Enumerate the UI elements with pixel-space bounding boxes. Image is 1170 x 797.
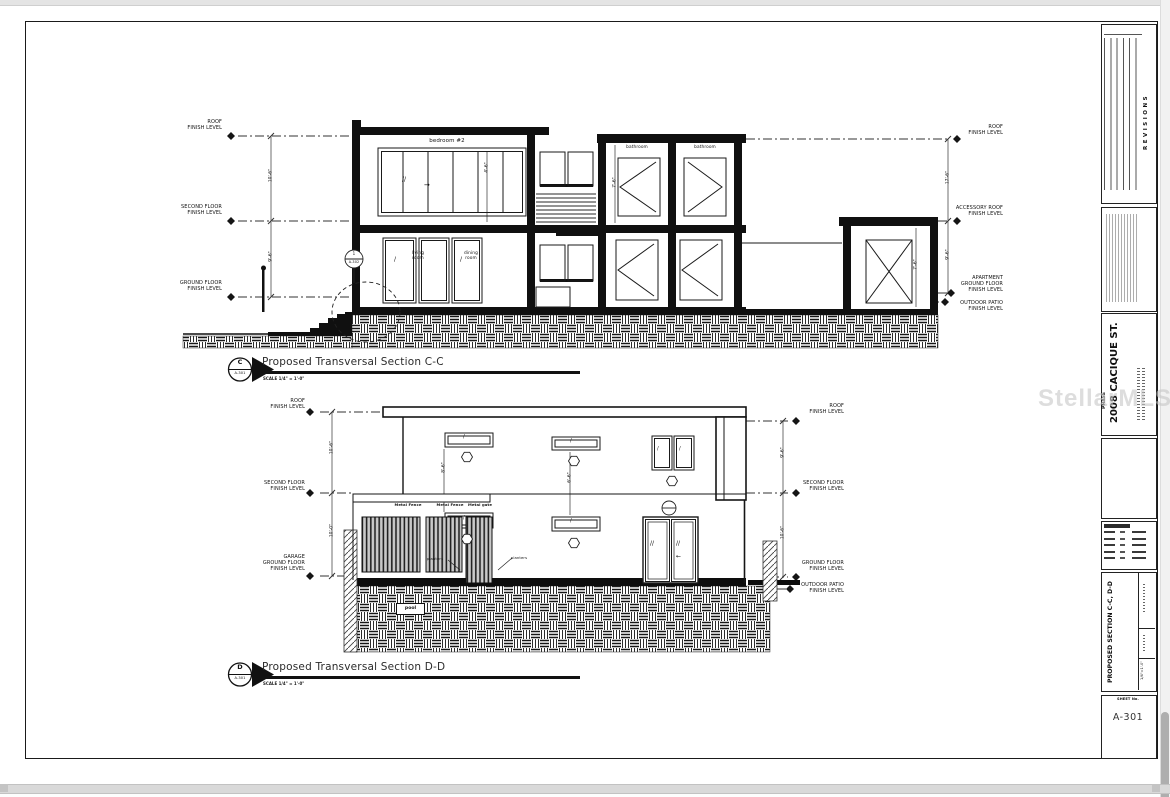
dd-scale-note: SCALE 1/4" = 1'-0" [263,681,304,686]
dd-dim-int-a: 8'-6" [442,453,447,483]
dd-ground-hatch [356,586,770,652]
dd-level-label-ground-right: GROUND FLOOR FINISH LEVEL [797,561,844,573]
dd-dim-int-b: 6'-6" [568,463,573,493]
cc-title-underline [262,371,580,374]
cc-level-label-second-left: SECOND FLOOR FINISH LEVEL [166,205,222,217]
dd-retaining-wall-left [344,530,357,652]
dd-metal-fence-2 [426,517,462,572]
dd-window-a-glyph: / [463,434,465,440]
dd-window-b-glyph: / [570,438,572,444]
cc-dim-left-lower: 9'-6" [269,242,274,272]
cc-bath-door-lr [680,240,722,300]
dd-window-c2-glyph: / [679,446,681,452]
dd-retaining-wall-right [763,541,777,601]
cc-bath-door-ul [618,158,660,216]
cc-section-title: Proposed Transversal Section C-C [262,356,444,368]
cc-room-label-bathroom-ul: bathroom [607,145,667,150]
dd-window-d-glyph: / [463,515,465,521]
cc-bedroom-window-band [378,148,526,216]
sheet-number-label: SHEET No. [1103,697,1153,703]
cc-room-label-bathroom-ur: bathroom [675,145,735,150]
sheet-number: A-301 [1103,715,1153,721]
cc-room-label-bathroom-lr: bathroom [673,227,733,232]
dd-marker-letter: D [233,665,247,671]
dd-label-planters-2: planters [504,555,534,561]
dd-label-planters-1: planters [420,556,450,562]
cc-room-label-bedroom: bedroom #2 [417,139,477,145]
cc-stair-treads [536,192,596,226]
cc-dim-right-upper: 17'-6" [946,163,951,193]
cc-level-label-apartment-ground: APARTMENT GROUND FLOOR FINISH LEVEL [948,276,1003,293]
cc-marker-letter: C [233,360,247,366]
cc-room-label-bathroom-ll: bathroom [605,227,665,232]
cc-patio-slab [746,309,938,315]
cc-roof-parapet [352,120,361,128]
dd-door-swing-arrow-icon: ← [676,553,681,560]
cc-scale-note: SCALE 1/4" = 1'-0" [263,376,304,381]
dd-level-label-roof-right: ROOF FINISH LEVEL [800,404,844,416]
cc-ground-slab [352,307,746,315]
dd-level-label-second-right: SECOND FLOOR FINISH LEVEL [797,481,844,493]
cc-dim-left-upper: 10'-6" [269,161,274,191]
cc-level-label-ground-left: GROUND FLOOR FINISH LEVEL [166,281,222,293]
cc-dim-right-lower: 9'-6" [946,240,951,270]
dd-dim-left-upper: 10'-6" [330,433,335,463]
cc-dining-glass-door [452,238,482,303]
dd-garage-slab [353,494,490,502]
dd-metal-gate [466,517,492,583]
cc-structure [261,120,938,336]
dd-label-pool: pool [396,603,425,615]
dd-section-title: Proposed Transversal Section D-D [262,661,445,673]
cc-accessory-roof-slab [839,217,938,226]
dd-roof-slab [383,407,746,417]
cc-ground-hatch-main [352,315,938,348]
dd-dim-right-lower: 10'-6" [781,518,786,548]
cc-roof-slab [352,127,549,135]
cc-dining-glass-glyph: / [460,256,462,263]
cc-level-label-outdoor-patio: OUTDOOR PATIO FINISH LEVEL [950,301,1003,313]
cc-callout-sheet: A-302 [342,260,366,266]
cc-post [262,270,265,312]
cc-dim-int-accessory: 7'-6" [914,250,919,280]
cc-living-glass-glyph: / [394,256,396,263]
cc-callout-number: 1 [348,251,360,257]
cc-dim-int-bath: 7'-6" [613,168,618,198]
cc-marker-sheet: A-301 [228,371,252,377]
dd-marker-sheet: A-301 [228,676,252,682]
cc-dim-int-bedroom: 4'-6" [485,153,490,183]
dd-level-label-second-left: SECOND FLOOR FINISH LEVEL [252,481,305,493]
dd-title-underline [262,676,580,679]
cc-bedroom-arrow-icon: → [424,181,430,189]
dd-door-leaf2-glyph: // [676,540,680,547]
dd-door [643,517,698,583]
dd-window-e-glyph: / [570,518,572,524]
dd-label-metal-fence-1: Metal Fence [388,502,428,508]
dd-fences [362,517,492,583]
cc-bedroom-glass-glyph: // [402,176,406,183]
cc-bath-door-ur [684,158,726,216]
dd-level-label-roof-left: ROOF FINISH LEVEL [255,399,305,411]
cc-bath-roof-slab [597,134,746,143]
cc-room-label-living: living room [402,251,434,261]
cc-living-glass-door [383,238,416,303]
cc-ground-hatch-left [183,336,352,348]
dd-door-leaf1-glyph: // [650,540,654,547]
cc-level-label-accessory-roof: ACCESSORY ROOF FINISH LEVEL [950,206,1003,218]
dd-dim-left-lower: 10'-0" [330,516,335,546]
cc-ground-hatch [183,315,938,348]
dd-stair-bulkhead [716,417,746,500]
dd-level-label-outdoor-patio: OUTDOOR PATIO FINISH LEVEL [799,583,844,595]
screenshot-root: ROOF FINISH LEVEL SECOND FLOOR FINISH LE… [0,0,1170,797]
cc-bath-door-ll [616,240,658,300]
dd-label-metal-gate: Metal gate [462,502,498,508]
dd-window-c1-glyph: / [657,446,659,452]
dd-metal-fence-1 [362,517,420,572]
dd-dim-right-upper: 9'-6" [781,438,786,468]
dd-level-label-garage: GARAGE GROUND FLOOR FINISH LEVEL [250,555,305,572]
cc-level-label-roof-right: ROOF FINISH LEVEL [953,125,1003,137]
cc-level-label-roof-left: ROOF FINISH LEVEL [170,120,222,132]
cc-entry-steps [268,312,352,336]
